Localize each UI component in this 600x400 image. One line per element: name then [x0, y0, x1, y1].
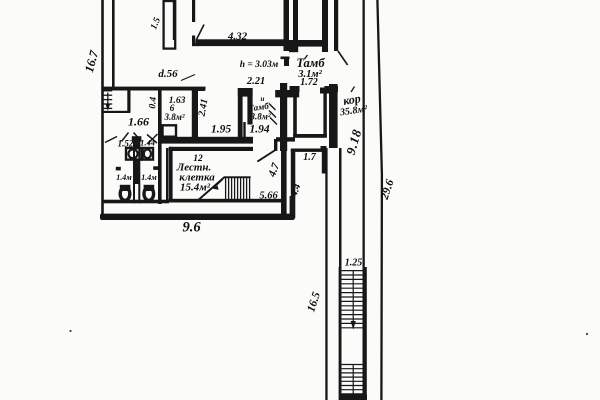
svg-text:3.8м²: 3.8м²	[163, 112, 184, 122]
svg-text:0.4: 0.4	[148, 96, 159, 109]
svg-text:1.66: 1.66	[128, 115, 149, 129]
svg-text:9.6: 9.6	[182, 220, 201, 236]
svg-text:Тамб: Тамб	[296, 56, 325, 70]
svg-text:2.21: 2.21	[246, 76, 265, 87]
svg-text:15.4м²: 15.4м²	[180, 182, 211, 194]
svg-text:1.44: 1.44	[140, 138, 155, 148]
svg-text:1.95: 1.95	[211, 124, 231, 136]
svg-text:5.66: 5.66	[259, 191, 278, 202]
svg-text:1.52: 1.52	[118, 139, 134, 149]
svg-text:1.7: 1.7	[303, 152, 317, 163]
svg-text:4.32: 4.32	[227, 31, 248, 43]
svg-text:1.94: 1.94	[249, 124, 269, 136]
svg-text:d.56: d.56	[158, 68, 178, 80]
svg-text:1.4м: 1.4м	[141, 173, 157, 182]
svg-text:1.4м: 1.4м	[116, 173, 132, 182]
svg-text:3.8м²: 3.8м²	[249, 112, 270, 122]
svg-text:1.72: 1.72	[300, 77, 318, 88]
svg-text:h = 3.03м: h = 3.03м	[240, 60, 279, 70]
svg-text:1.25: 1.25	[345, 258, 363, 269]
